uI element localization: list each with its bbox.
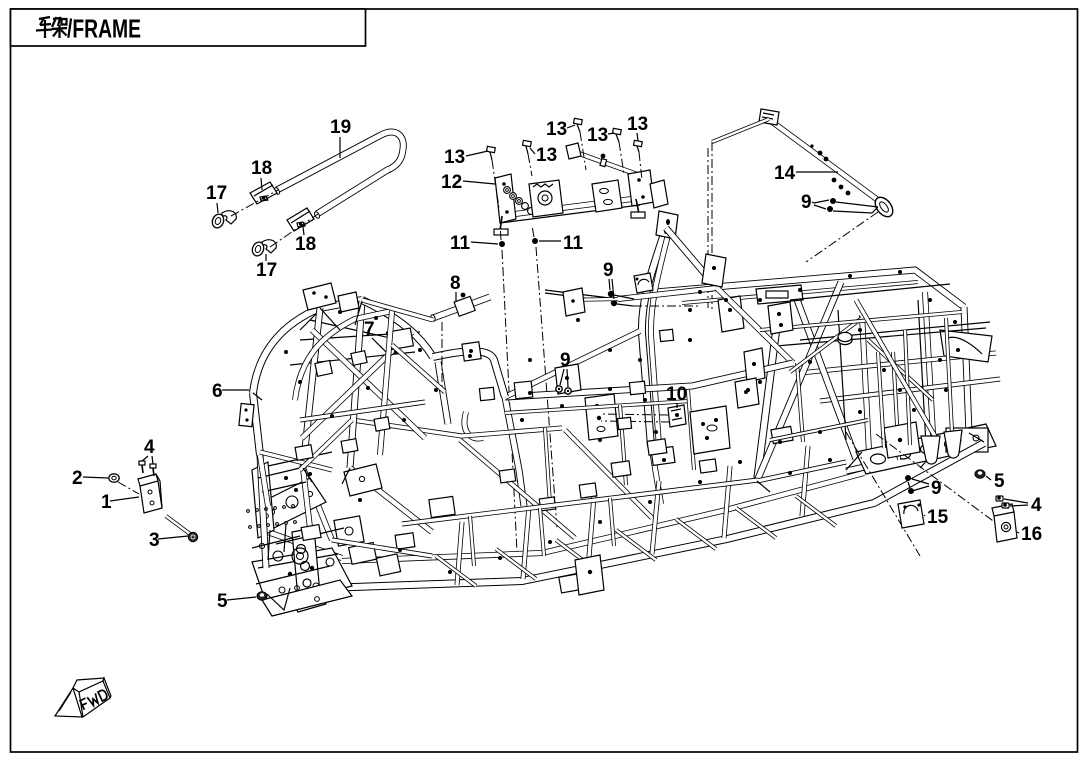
- svg-text:9: 9: [801, 192, 812, 213]
- svg-text:9: 9: [931, 478, 942, 499]
- svg-text:17: 17: [256, 260, 277, 281]
- svg-text:9: 9: [603, 260, 614, 281]
- svg-text:14: 14: [774, 163, 796, 184]
- svg-text:3: 3: [149, 530, 160, 551]
- svg-text:13: 13: [627, 114, 648, 135]
- svg-text:17: 17: [206, 183, 227, 204]
- svg-text:/FRAME: /FRAME: [67, 14, 141, 44]
- svg-text:19: 19: [330, 117, 351, 138]
- svg-text:4: 4: [1031, 495, 1042, 516]
- svg-text:12: 12: [441, 172, 462, 193]
- svg-text:2: 2: [72, 468, 83, 489]
- svg-text:13: 13: [444, 147, 465, 168]
- svg-text:18: 18: [251, 158, 272, 179]
- svg-text:10: 10: [666, 384, 687, 405]
- svg-text:13: 13: [546, 119, 567, 140]
- svg-text:1: 1: [101, 492, 112, 513]
- svg-text:9: 9: [560, 350, 571, 371]
- svg-text:15: 15: [927, 507, 949, 528]
- svg-text:16: 16: [1021, 524, 1042, 545]
- svg-text:11: 11: [450, 233, 471, 254]
- svg-text:4: 4: [144, 437, 155, 458]
- svg-text:6: 6: [212, 381, 223, 402]
- svg-text:13: 13: [536, 145, 557, 166]
- svg-text:7: 7: [364, 319, 375, 340]
- svg-text:11: 11: [563, 233, 584, 254]
- svg-text:5: 5: [217, 591, 228, 612]
- svg-text:13: 13: [587, 125, 608, 146]
- svg-text:8: 8: [450, 273, 461, 294]
- svg-text:5: 5: [994, 471, 1005, 492]
- svg-text:18: 18: [295, 234, 316, 255]
